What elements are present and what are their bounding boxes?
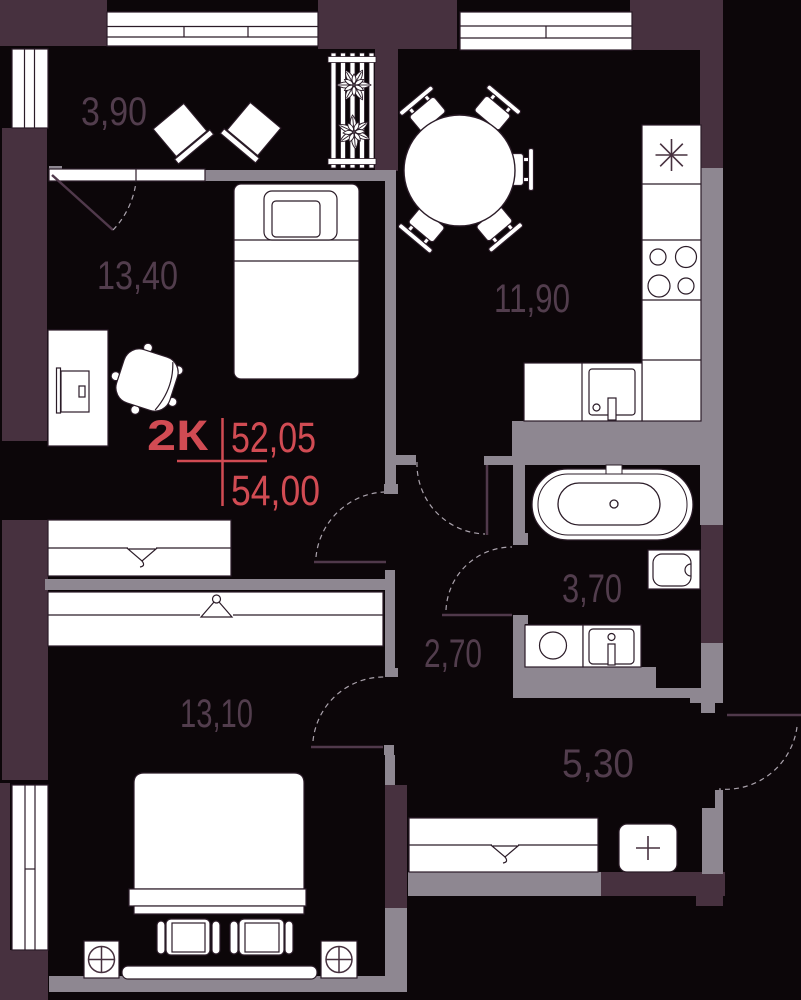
svg-text:13,40: 13,40 xyxy=(97,254,178,298)
svg-text:13,10: 13,10 xyxy=(180,692,253,736)
svg-text:3,90: 3,90 xyxy=(81,90,147,134)
svg-text:11,90: 11,90 xyxy=(494,277,570,321)
svg-text:2К: 2К xyxy=(147,412,209,460)
svg-text:2,70: 2,70 xyxy=(424,632,482,676)
svg-text:3,70: 3,70 xyxy=(562,567,622,611)
svg-text:5,30: 5,30 xyxy=(562,742,634,786)
svg-text:54,00: 54,00 xyxy=(231,467,320,515)
svg-text:52,05: 52,05 xyxy=(231,414,316,462)
